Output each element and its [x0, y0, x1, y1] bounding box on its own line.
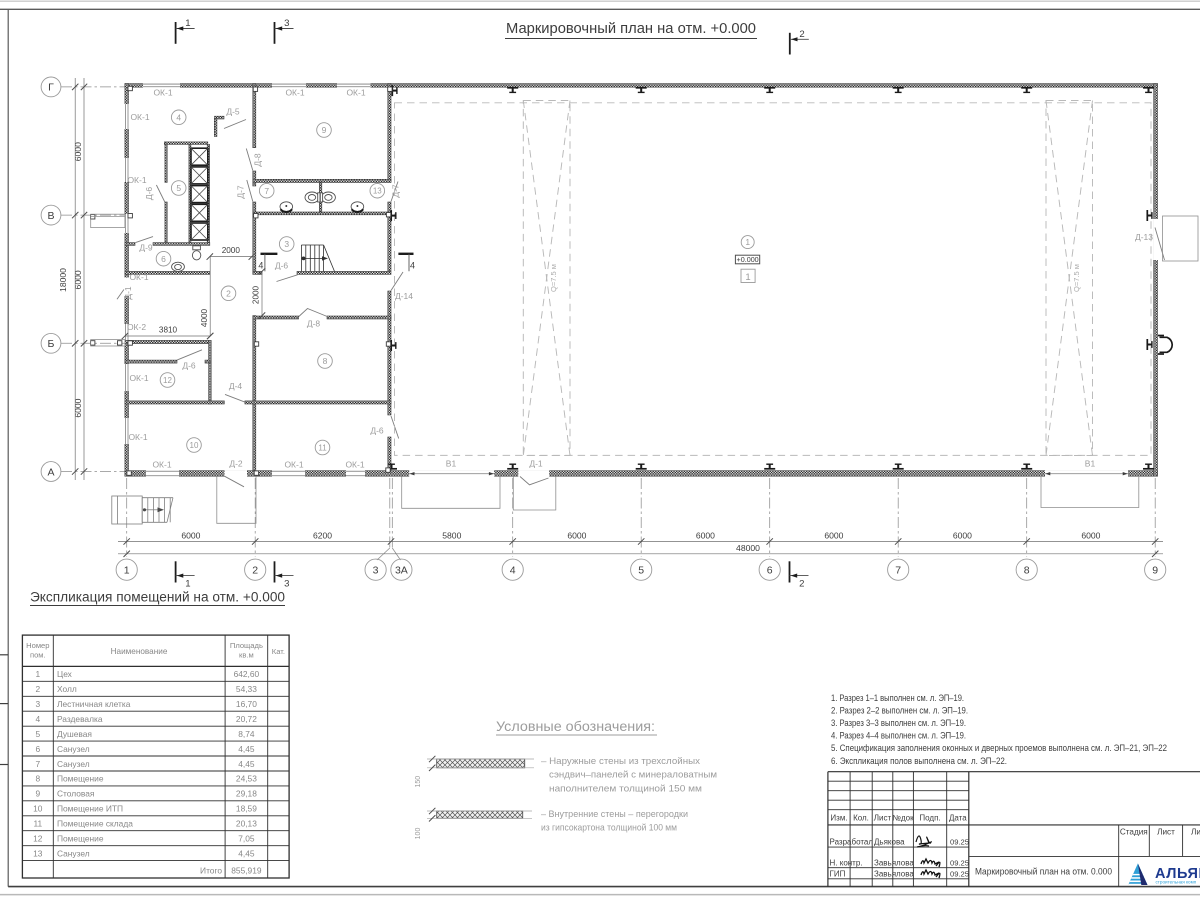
- svg-text:1: 1: [35, 669, 40, 679]
- svg-text:20,72: 20,72: [236, 714, 257, 724]
- svg-text:3: 3: [284, 578, 289, 589]
- svg-text:7: 7: [35, 759, 40, 769]
- svg-text:2: 2: [799, 578, 804, 589]
- svg-text:ОК-1: ОК-1: [129, 373, 148, 383]
- svg-text:Q=7.5 м: Q=7.5 м: [1072, 264, 1081, 292]
- svg-text:13: 13: [373, 187, 382, 196]
- svg-text:9: 9: [322, 125, 327, 135]
- svg-text:100: 100: [415, 828, 422, 840]
- svg-text:ОК-1: ОК-1: [346, 88, 365, 98]
- svg-text:В1: В1: [1085, 459, 1096, 469]
- svg-text:сэндвич–панелей с минераловатн: сэндвич–панелей с минераловатным: [549, 770, 717, 780]
- svg-text:18000: 18000: [58, 268, 68, 292]
- svg-text:Д-6: Д-6: [370, 426, 384, 436]
- svg-text:1. Разрез 1–1 выполнен см. л.: 1. Разрез 1–1 выполнен см. л. ЭП–19.: [831, 693, 964, 703]
- svg-text:54,33: 54,33: [236, 684, 257, 694]
- svg-text:Дата: Дата: [949, 814, 967, 823]
- svg-text:ГИП: ГИП: [830, 870, 846, 879]
- svg-text:Q=7.5 м: Q=7.5 м: [549, 264, 558, 292]
- svg-text:8,74: 8,74: [238, 729, 255, 739]
- svg-text:Д-1: Д-1: [123, 286, 133, 300]
- svg-text:Изм.: Изм.: [830, 814, 847, 823]
- svg-text:Дьякова: Дьякова: [874, 838, 905, 847]
- svg-text:855,919: 855,919: [231, 866, 262, 876]
- svg-text:11: 11: [33, 819, 42, 829]
- svg-text:2000: 2000: [222, 246, 241, 255]
- svg-text:6200: 6200: [313, 531, 332, 541]
- svg-text:ОК-1: ОК-1: [127, 175, 146, 185]
- svg-text:Д-1: Д-1: [529, 459, 543, 469]
- svg-text:12: 12: [33, 834, 43, 844]
- svg-text:6000: 6000: [567, 531, 586, 541]
- svg-text:Завьялова: Завьялова: [874, 859, 914, 868]
- svg-text:1: 1: [185, 18, 190, 29]
- svg-text:9: 9: [35, 789, 40, 799]
- svg-text:1: 1: [745, 272, 750, 283]
- svg-text:Помещение ИТП: Помещение ИТП: [57, 804, 123, 814]
- svg-text:2000: 2000: [252, 285, 261, 304]
- svg-text:Санузел: Санузел: [57, 848, 90, 858]
- svg-text:Кол.: Кол.: [853, 814, 869, 823]
- svg-text:№док: №док: [892, 814, 914, 823]
- svg-text:Д-9: Д-9: [139, 243, 153, 253]
- svg-text:6000: 6000: [1081, 531, 1100, 541]
- svg-text:Д-5: Д-5: [226, 107, 240, 117]
- svg-text:Итого: Итого: [200, 866, 222, 876]
- svg-text:1: 1: [745, 237, 750, 247]
- svg-text:Лис: Лис: [1191, 828, 1200, 837]
- svg-text:– Наружные стены из трехслойны: – Наружные стены из трехслойных: [541, 756, 700, 766]
- svg-text:4,45: 4,45: [238, 848, 255, 858]
- svg-text:7,05: 7,05: [238, 834, 255, 844]
- svg-text:8: 8: [35, 774, 40, 784]
- svg-text:3810: 3810: [159, 326, 178, 335]
- svg-text:Лист: Лист: [1157, 828, 1175, 837]
- svg-text:24,53: 24,53: [236, 774, 257, 784]
- svg-text:Б: Б: [48, 338, 55, 350]
- svg-text:5. Спецификация заполнения око: 5. Спецификация заполнения оконных и две…: [831, 743, 1167, 753]
- svg-text:2: 2: [226, 288, 231, 298]
- svg-text:642,60: 642,60: [234, 669, 260, 679]
- svg-text:ОК-2: ОК-2: [127, 322, 146, 332]
- svg-text:4,45: 4,45: [238, 759, 255, 769]
- svg-text:4,45: 4,45: [238, 744, 255, 754]
- svg-text:3: 3: [35, 699, 40, 709]
- svg-text:Г: Г: [48, 82, 54, 94]
- svg-text:6: 6: [35, 744, 40, 754]
- svg-text:150: 150: [415, 776, 422, 788]
- svg-text:11: 11: [318, 443, 327, 452]
- svg-text:3. Разрез 3–3 выполнен см. л.: 3. Разрез 3–3 выполнен см. л. ЭП–19.: [831, 718, 966, 728]
- svg-text:ОК-1: ОК-1: [284, 460, 303, 470]
- svg-text:В1: В1: [446, 459, 457, 469]
- svg-text:строительная комп: строительная комп: [1156, 879, 1197, 884]
- svg-text:12: 12: [163, 376, 172, 385]
- svg-text:Маркировочный план на отм. 0.0: Маркировочный план на отм. 0.000: [975, 867, 1112, 878]
- svg-text:пом.: пом.: [30, 651, 46, 660]
- svg-text:8: 8: [323, 356, 328, 366]
- svg-text:5: 5: [35, 729, 40, 739]
- svg-text:10: 10: [190, 441, 199, 450]
- svg-text:16,70: 16,70: [236, 699, 257, 709]
- svg-text:Д-6: Д-6: [182, 361, 196, 371]
- svg-text:3: 3: [373, 565, 379, 577]
- svg-text:Душевая: Душевая: [57, 729, 92, 739]
- svg-text:3А: 3А: [395, 565, 408, 577]
- svg-text:Стадия: Стадия: [1120, 828, 1148, 837]
- svg-text:Помещение склада: Помещение склада: [57, 819, 133, 829]
- svg-text:4: 4: [258, 260, 263, 270]
- svg-text:6000: 6000: [696, 531, 715, 541]
- svg-text:ОК-1: ОК-1: [285, 88, 304, 98]
- svg-text:6. Экспликация полов выполнена: 6. Экспликация полов выполнена см. л. ЭП…: [831, 756, 1007, 766]
- svg-text:6000: 6000: [73, 398, 83, 417]
- svg-text:Завьялова: Завьялова: [874, 870, 914, 879]
- svg-text:29,18: 29,18: [236, 789, 257, 799]
- svg-text:5: 5: [638, 565, 644, 577]
- svg-text:Помещение: Помещение: [57, 834, 104, 844]
- svg-text:Д-4: Д-4: [229, 381, 243, 391]
- svg-text:9: 9: [1152, 565, 1158, 577]
- svg-text:7: 7: [895, 565, 901, 577]
- svg-text:Раздевалка: Раздевалка: [57, 714, 103, 724]
- svg-text:4: 4: [510, 565, 516, 577]
- svg-text:Маркировочный план на отм. +0.: Маркировочный план на отм. +0.000: [506, 20, 756, 37]
- svg-text:5800: 5800: [442, 531, 461, 541]
- svg-text:6: 6: [161, 254, 166, 264]
- svg-text:ОК-1: ОК-1: [128, 432, 147, 442]
- svg-text:Н. контр.: Н. контр.: [830, 859, 863, 868]
- svg-text:6000: 6000: [953, 531, 972, 541]
- svg-text:Д-6: Д-6: [144, 187, 154, 201]
- svg-text:10: 10: [33, 804, 43, 814]
- svg-text:– Внутренние стены – перегород: – Внутренние стены – перегородки: [541, 809, 688, 819]
- svg-text:3: 3: [284, 18, 289, 29]
- svg-text:2. Разрез 2–2 выполнен см. л.: 2. Разрез 2–2 выполнен см. л. ЭП–19.: [831, 706, 968, 716]
- svg-text:Санузел: Санузел: [57, 744, 90, 754]
- svg-text:13: 13: [33, 848, 43, 858]
- svg-text:3: 3: [284, 239, 289, 249]
- svg-text:Кат.: Кат.: [272, 647, 285, 656]
- svg-text:2: 2: [799, 29, 804, 40]
- svg-text:4: 4: [35, 714, 40, 724]
- svg-text:В: В: [47, 210, 54, 222]
- svg-text:Д-7: Д-7: [391, 184, 401, 198]
- svg-text:6000: 6000: [181, 531, 200, 541]
- svg-text:Экспликация помещений на отм.: Экспликация помещений на отм. +0.000: [30, 590, 285, 606]
- svg-text:6000: 6000: [73, 142, 83, 161]
- svg-text:Д-8: Д-8: [307, 319, 321, 329]
- svg-text:Столовая: Столовая: [57, 789, 94, 799]
- svg-text:6000: 6000: [73, 270, 83, 289]
- svg-text:6: 6: [767, 565, 773, 577]
- svg-text:20,13: 20,13: [236, 819, 257, 829]
- svg-text:ОК-1: ОК-1: [153, 88, 172, 98]
- svg-text:4. Разрез 4–4 выполнен см. л.: 4. Разрез 4–4 выполнен см. л. ЭП–19.: [831, 731, 966, 741]
- svg-text:4: 4: [176, 112, 181, 122]
- svg-text:ОК-1: ОК-1: [129, 272, 148, 282]
- svg-text:+0.000: +0.000: [737, 255, 759, 264]
- svg-text:09.25: 09.25: [950, 838, 969, 847]
- svg-text:Номер: Номер: [26, 641, 49, 650]
- svg-text:Холл: Холл: [57, 684, 77, 694]
- svg-text:09.25: 09.25: [950, 870, 969, 879]
- svg-text:48000: 48000: [736, 543, 760, 553]
- svg-text:Помещение: Помещение: [57, 774, 104, 784]
- svg-text:Подп.: Подп.: [919, 814, 940, 823]
- svg-text:1: 1: [185, 578, 190, 589]
- svg-text:Лист: Лист: [874, 814, 892, 823]
- svg-text:Условные обозначения:: Условные обозначения:: [496, 719, 655, 734]
- svg-text:ОК-1: ОК-1: [130, 112, 149, 122]
- svg-text:Площадь: Площадь: [230, 641, 263, 650]
- svg-text:кв.м: кв.м: [239, 651, 254, 660]
- svg-text:Д-8: Д-8: [253, 153, 263, 167]
- svg-text:Цех: Цех: [57, 669, 73, 679]
- svg-text:8: 8: [1024, 565, 1030, 577]
- svg-text:2: 2: [35, 684, 40, 694]
- svg-text:А: А: [47, 466, 54, 478]
- svg-text:1: 1: [124, 565, 130, 577]
- svg-text:Д-6: Д-6: [275, 261, 289, 271]
- svg-text:18,59: 18,59: [236, 804, 257, 814]
- svg-text:4000: 4000: [200, 308, 209, 327]
- svg-text:Д-7: Д-7: [236, 185, 246, 199]
- svg-text:6000: 6000: [824, 531, 843, 541]
- svg-text:09.25: 09.25: [950, 859, 969, 868]
- svg-text:Разработал: Разработал: [830, 838, 874, 847]
- svg-text:7: 7: [264, 186, 269, 196]
- svg-text:2: 2: [252, 565, 258, 577]
- svg-text:Д-2: Д-2: [229, 459, 243, 469]
- svg-text:Д-14: Д-14: [395, 291, 413, 301]
- svg-text:Наименование: Наименование: [111, 647, 168, 656]
- svg-text:ОК-1: ОК-1: [345, 460, 364, 470]
- svg-text:из гипсокартона толщиной 100 м: из гипсокартона толщиной 100 мм: [541, 823, 677, 833]
- svg-text:наполнителем толщиной 150 мм: наполнителем толщиной 150 мм: [549, 783, 702, 793]
- svg-text:Лестничная клетка: Лестничная клетка: [57, 699, 131, 709]
- svg-text:Санузел: Санузел: [57, 759, 90, 769]
- svg-text:4: 4: [410, 260, 415, 270]
- svg-text:ОК-1: ОК-1: [152, 460, 171, 470]
- svg-text:5: 5: [176, 183, 181, 193]
